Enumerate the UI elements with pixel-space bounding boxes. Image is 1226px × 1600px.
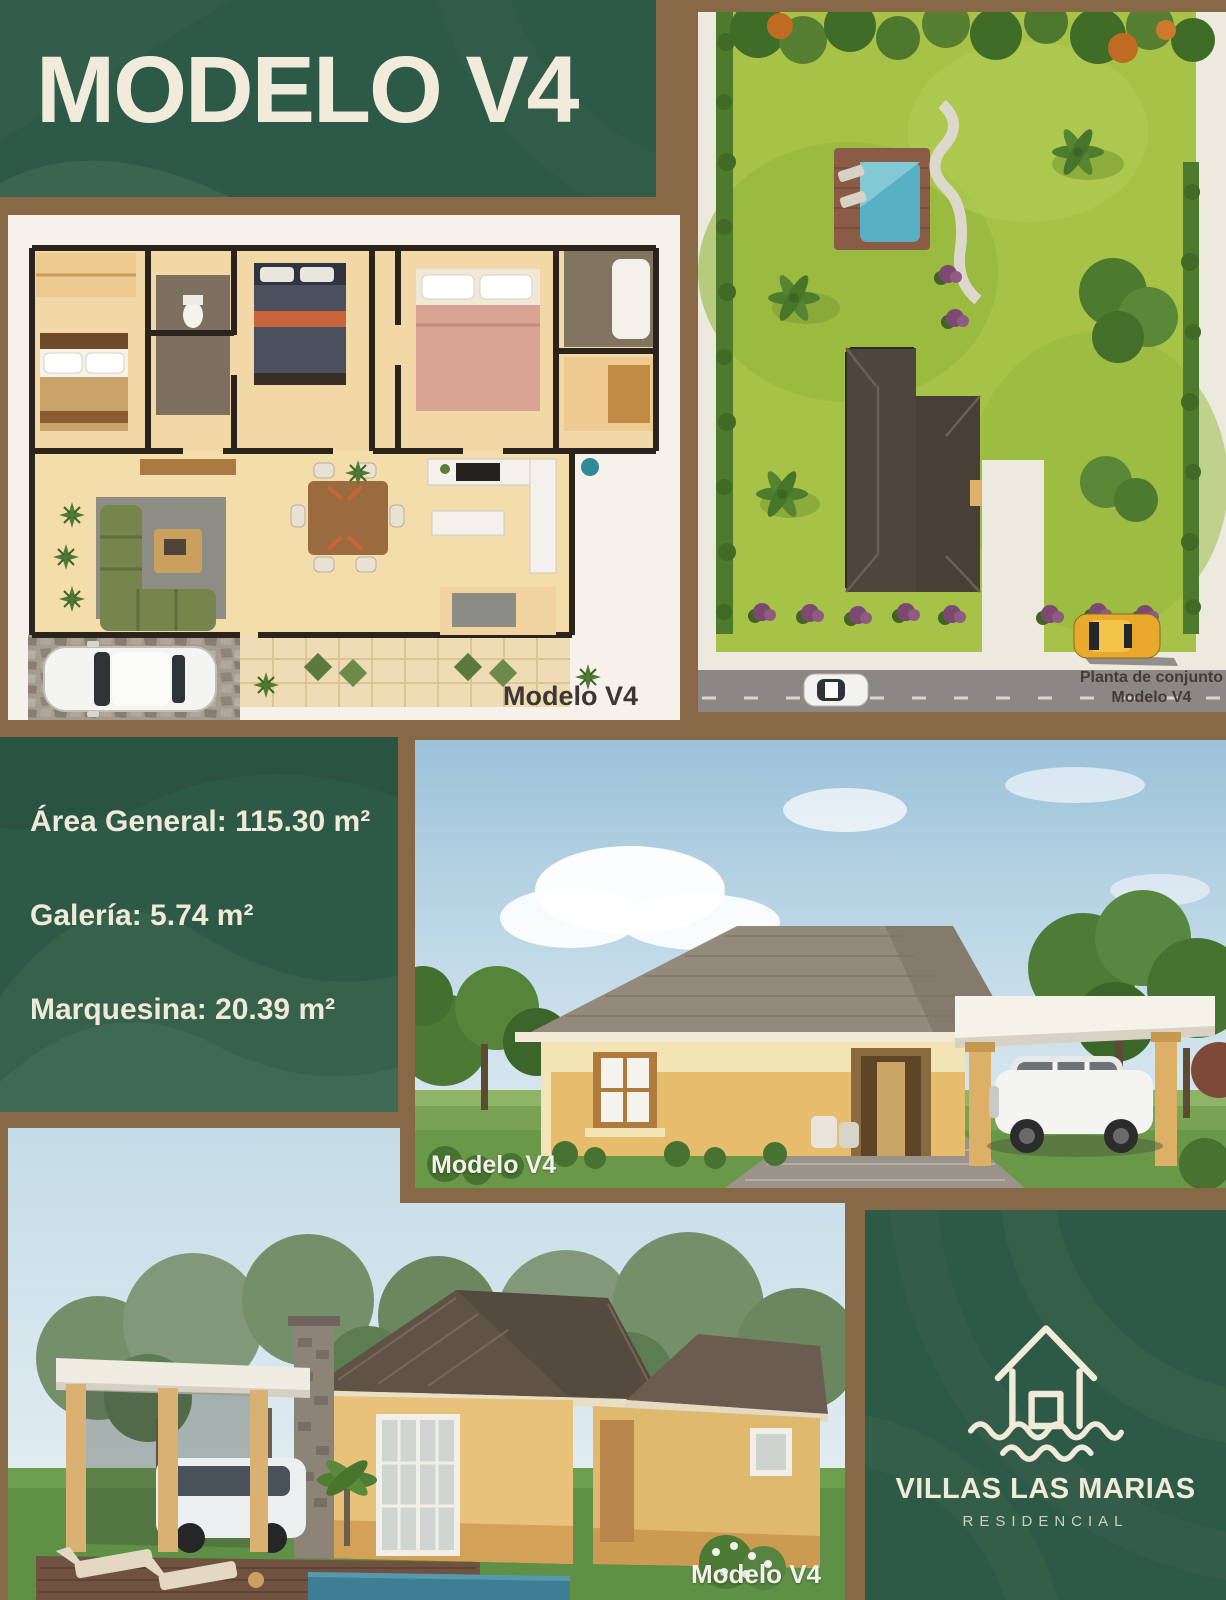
- brand-panel: VILLAS LAS MARIAS RESIDENCIAL: [865, 1210, 1226, 1600]
- specs-panel: Área General: 115.30 m² Galería: 5.74 m²…: [0, 737, 398, 1112]
- floor-plan-caption: Modelo V4: [503, 681, 638, 712]
- page-title: MODELO V4: [36, 36, 636, 145]
- site-plan-caption: Planta de conjunto Modelo V4: [1080, 668, 1223, 708]
- sideboard: [140, 459, 236, 475]
- bed-master: [416, 269, 540, 411]
- front-render-drawing: [415, 740, 1226, 1188]
- site-plan-caption-line1: Planta de conjunto: [1080, 668, 1223, 688]
- spec-area-general: Área General: 115.30 m²: [30, 805, 370, 839]
- back-render-drawing: [8, 1128, 845, 1600]
- bed-middle: [254, 263, 346, 385]
- pool-area: [834, 148, 930, 250]
- site-plan-caption-line2: Modelo V4: [1080, 688, 1223, 708]
- title-panel: MODELO V4: [0, 0, 656, 197]
- site-plan-drawing: [698, 12, 1226, 712]
- bed-left: [40, 333, 128, 431]
- front-render-caption: Modelo V4: [431, 1151, 556, 1180]
- car-top-view: [44, 641, 216, 717]
- white-car: [804, 674, 868, 706]
- brand-tagline: RESIDENCIAL: [865, 1513, 1226, 1530]
- brand-name: VILLAS LAS MARIAS: [865, 1473, 1226, 1506]
- floor-plan-drawing: [8, 215, 680, 720]
- site-plan-image: Planta de conjunto Modelo V4: [698, 12, 1226, 712]
- driveway-patio: [982, 460, 1044, 652]
- brand-logo-stack: VILLAS LAS MARIAS RESIDENCIAL: [865, 1298, 1226, 1530]
- back-render-image: Modelo V4: [8, 1128, 845, 1600]
- white-suv: [987, 1056, 1163, 1157]
- spec-marquesina: Marquesina: 20.39 m²: [30, 993, 335, 1027]
- house-over-waves-icon: [943, 1298, 1149, 1466]
- front-render-image: Modelo V4: [415, 740, 1226, 1188]
- brochure-page: MODELO V4: [0, 0, 1226, 1600]
- blue-stool: [581, 458, 599, 476]
- spec-galeria: Galería: 5.74 m²: [30, 899, 253, 933]
- back-render-caption: Modelo V4: [691, 1559, 821, 1590]
- floor-plan-image: Modelo V4: [8, 215, 680, 720]
